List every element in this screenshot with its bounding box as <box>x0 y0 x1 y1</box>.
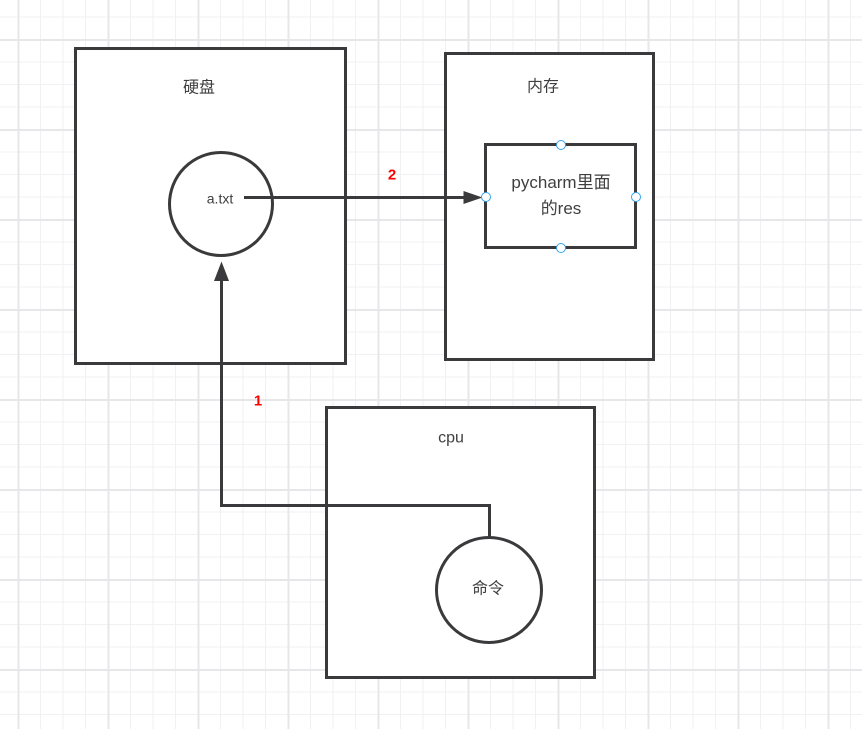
edge-2-label[interactable]: 2 <box>388 167 396 184</box>
file-circle-label: a.txt <box>207 191 233 208</box>
command-circle-label: 命令 <box>472 579 504 598</box>
selection-handle-right[interactable] <box>631 192 641 202</box>
res-box-label-line2: 的res <box>511 196 610 222</box>
selection-handle-top[interactable] <box>556 140 566 150</box>
res-box-label: pycharm里面 的res <box>511 170 610 222</box>
cpu-box-label: cpu <box>438 428 464 447</box>
res-box-label-line1: pycharm里面 <box>511 170 610 196</box>
disk-box-label: 硬盘 <box>183 78 215 97</box>
edge-1-label[interactable]: 1 <box>254 393 262 410</box>
diagram-canvas[interactable]: 硬盘 a.txt 内存 pycharm里面 的res cpu 命令 1 2 <box>0 0 862 729</box>
selection-handle-bottom[interactable] <box>556 243 566 253</box>
selection-handle-left[interactable] <box>481 192 491 202</box>
memory-box-label: 内存 <box>527 77 559 96</box>
